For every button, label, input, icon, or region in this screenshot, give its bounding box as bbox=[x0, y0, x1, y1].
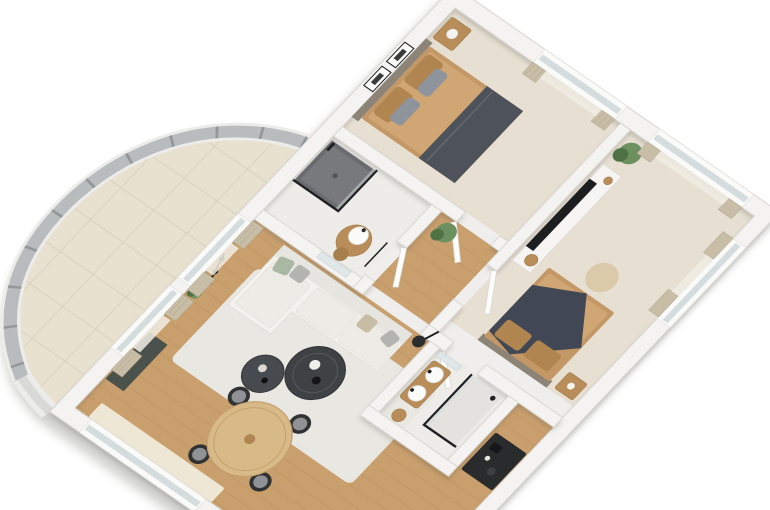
floor-plan-render bbox=[0, 0, 770, 510]
floor-plan-canvas bbox=[0, 0, 770, 510]
